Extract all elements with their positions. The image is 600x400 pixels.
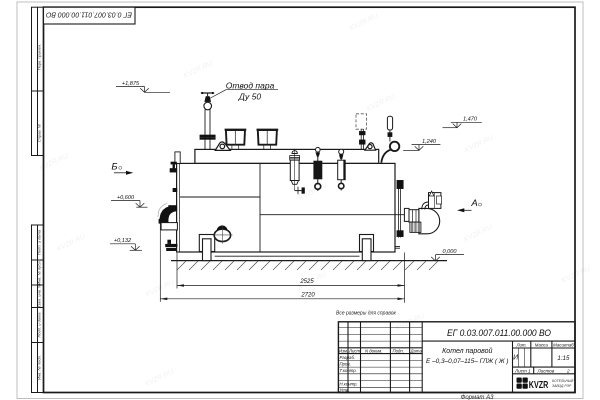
svg-text:Н.контр.: Н.контр. — [340, 382, 358, 387]
svg-text:Подп. и дата: Подп. и дата — [37, 229, 42, 255]
svg-text:Инв. № подл.: Инв. № подл. — [37, 355, 42, 380]
svg-text:Листов: Листов — [537, 368, 555, 373]
svg-text:2525: 2525 — [299, 279, 314, 285]
svg-text:Котел паровой: Котел паровой — [442, 347, 492, 355]
svg-text:Все размеры для справок: Все размеры для справок — [336, 311, 397, 317]
svg-text:1,240: 1,240 — [422, 139, 437, 145]
svg-text:ЕГ 0.03.007.011.00.000 ВО: ЕГ 0.03.007.011.00.000 ВО — [447, 328, 551, 338]
svg-text:Б: Б — [111, 162, 117, 173]
svg-text:1: 1 — [528, 368, 531, 373]
svg-text:Т.контр.: Т.контр. — [340, 368, 357, 373]
svg-text:KVZR: KVZR — [529, 379, 549, 391]
svg-text:Лит.: Лит. — [515, 342, 526, 347]
svg-text:А: А — [470, 198, 477, 209]
svg-text:Перв. примен.: Перв. примен. — [37, 44, 42, 71]
svg-text:Ду 50: Ду 50 — [238, 92, 261, 102]
svg-text:2: 2 — [566, 368, 570, 373]
svg-text:Масса: Масса — [535, 342, 549, 347]
svg-text:N докум.: N докум. — [365, 348, 382, 353]
svg-text:Лист: Лист — [348, 348, 360, 353]
svg-text:Дата: Дата — [410, 348, 423, 353]
svg-text:Пров.: Пров. — [340, 362, 351, 367]
svg-text:+1,875: +1,875 — [122, 81, 140, 87]
svg-text:Изм.: Изм. — [339, 348, 348, 353]
svg-text:Масштаб: Масштаб — [553, 342, 574, 347]
svg-text:ЕГ 0.03.007.011.00.000 ВО: ЕГ 0.03.007.011.00.000 ВО — [45, 11, 132, 18]
svg-text:Утв.: Утв. — [340, 388, 350, 393]
svg-text:Лист: Лист — [514, 368, 527, 373]
svg-text:Взам. инв. №: Взам. инв. № — [37, 283, 42, 308]
svg-text:Подп. и дата: Подп. и дата — [37, 312, 42, 338]
svg-text:2720: 2720 — [300, 292, 315, 298]
svg-text:+0,132: +0,132 — [114, 238, 132, 244]
svg-text:1:15: 1:15 — [557, 355, 570, 362]
svg-text:+0,600: +0,600 — [117, 195, 135, 201]
svg-text:1,470: 1,470 — [463, 117, 478, 123]
svg-text:Е –0,3–0,07–115– ГЛЖ ( Ж ): Е –0,3–0,07–115– ГЛЖ ( Ж ) — [426, 358, 509, 365]
svg-text:Разраб.: Разраб. — [340, 355, 356, 360]
svg-text:КОТЕЛЬНЫЙ: КОТЕЛЬНЫЙ — [552, 379, 574, 383]
svg-text:Формат А3: Формат А3 — [461, 395, 494, 400]
svg-text:Отвод пара: Отвод пара — [226, 81, 275, 91]
svg-text:Инв. № дубл.: Инв. № дубл. — [37, 260, 42, 285]
svg-text:0,000: 0,000 — [443, 249, 458, 255]
svg-text:Справ. №: Справ. № — [37, 123, 42, 142]
svg-text:Подп.: Подп. — [393, 348, 404, 353]
svg-text:ЗАВОД РЭР: ЗАВОД РЭР — [552, 384, 572, 388]
